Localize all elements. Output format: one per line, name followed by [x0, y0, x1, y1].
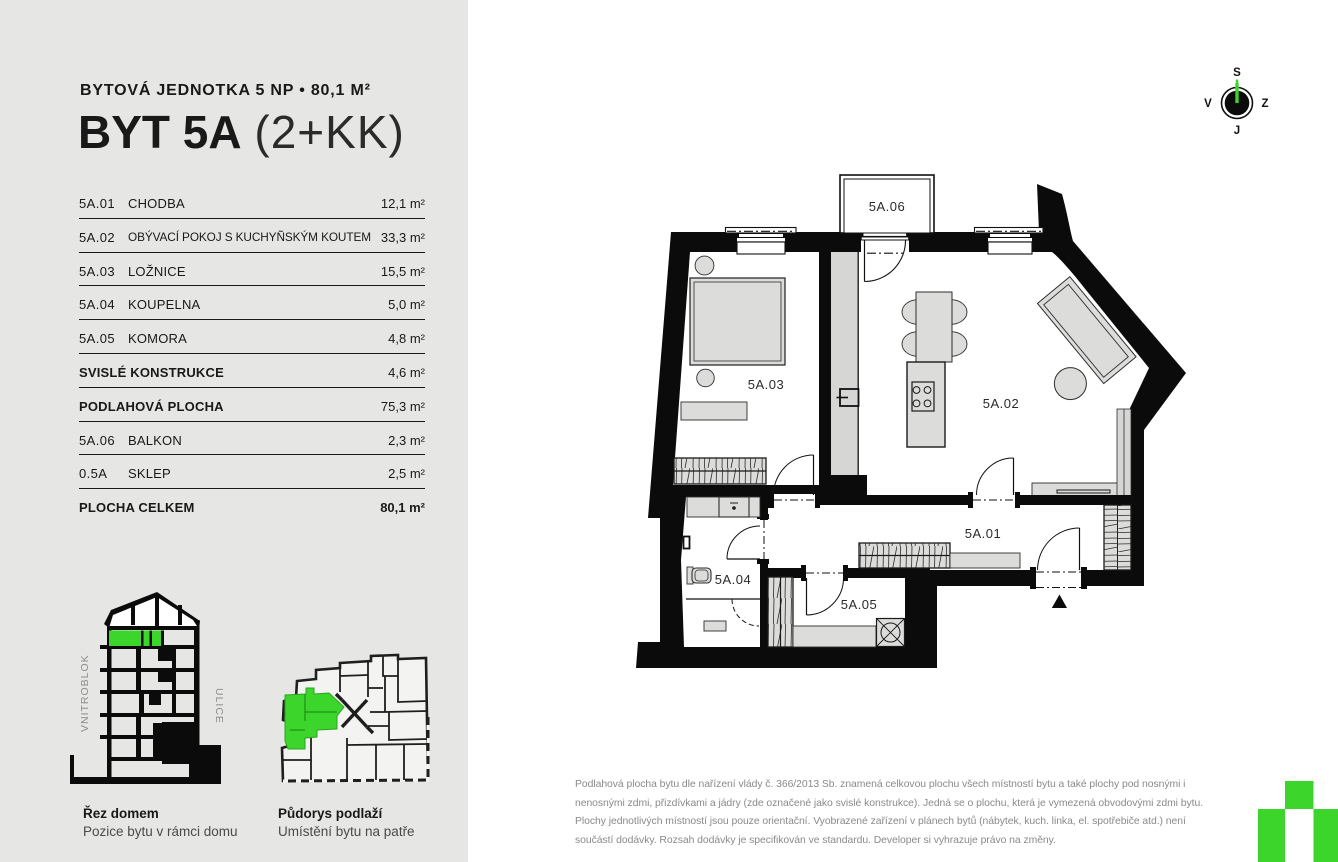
svg-text:ULICE: ULICE — [213, 688, 225, 724]
svg-text:5A.02: 5A.02 — [983, 396, 1019, 411]
svg-text:5A.03: 5A.03 — [748, 377, 784, 392]
svg-text:5A.04: 5A.04 — [715, 572, 751, 587]
svg-text:V: V — [1204, 98, 1212, 110]
svg-text:Z: Z — [1261, 98, 1268, 110]
svg-text:S: S — [1233, 67, 1241, 79]
svg-text:J: J — [1234, 125, 1240, 137]
svg-text:5A.05: 5A.05 — [841, 597, 877, 612]
svg-text:5A.01: 5A.01 — [965, 526, 1001, 541]
svg-text:VNITROBLOK: VNITROBLOK — [79, 654, 91, 732]
svg-text:5A.06: 5A.06 — [869, 199, 905, 214]
